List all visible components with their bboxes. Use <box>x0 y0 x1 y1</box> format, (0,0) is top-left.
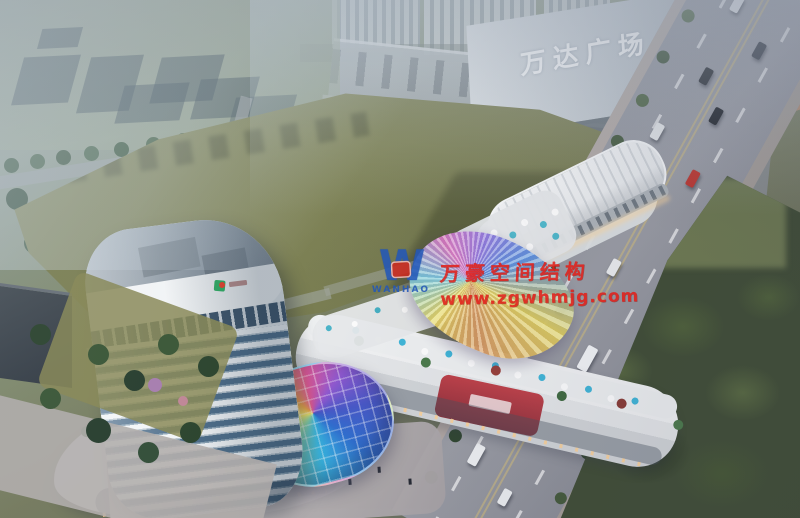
dark-building-block <box>37 27 83 49</box>
wanhao-logo-icon: W WANHAO <box>370 250 432 295</box>
umbrella-row <box>325 324 333 332</box>
tree-cluster <box>30 324 51 345</box>
car <box>497 488 513 507</box>
car <box>649 122 665 141</box>
brand-text-mark <box>229 280 247 287</box>
car <box>698 67 714 86</box>
tree-row <box>4 158 19 173</box>
car <box>751 41 767 60</box>
watermark: W WANHAO 万豪空间结构 www.zgwhmjg.com <box>370 250 639 308</box>
flowering-tree <box>148 378 162 392</box>
bus <box>576 345 598 373</box>
logo-wordmark: WANHAO <box>370 285 432 295</box>
car <box>708 106 724 125</box>
watermark-text: 万豪空间结构 www.zgwhmjg.com <box>440 254 640 309</box>
van <box>467 443 486 467</box>
watermark-website: www.zgwhmjg.com <box>440 286 639 309</box>
logo-red-badge-icon <box>391 260 412 278</box>
mall-roof-sign: 万达广场 <box>519 22 652 82</box>
aerial-rendering: 万达广场 <box>0 0 800 518</box>
watermark-company: 万豪空间结构 <box>439 254 639 287</box>
car <box>729 0 745 14</box>
